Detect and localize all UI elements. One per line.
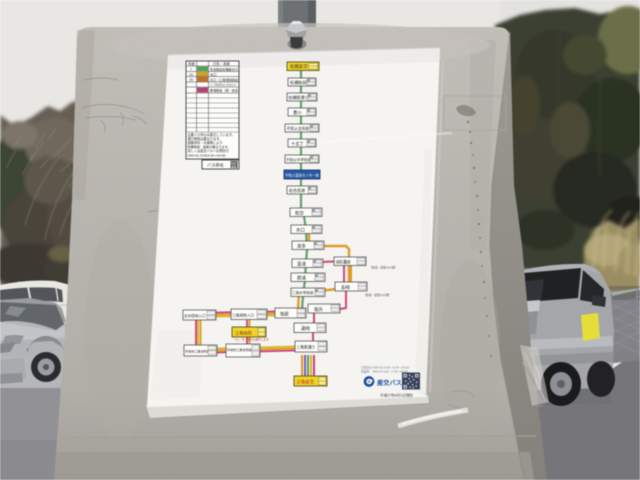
svg-text:波多: 波多 — [297, 243, 306, 250]
svg-text:郡浦: 郡浦 — [297, 275, 306, 282]
svg-text:三角中学校前: 三角中学校前 — [292, 290, 314, 295]
svg-text:15: 15 — [189, 78, 193, 82]
svg-text:北木団地入口: 北木団地入口 — [184, 313, 206, 318]
svg-text:宇城市三角支所前: 宇城市三角支所前 — [185, 349, 210, 354]
svg-text:三角駅通り: 三角駅通り — [297, 345, 316, 350]
svg-text:0964-52-3135(9:45～18:00): 0964-52-3135(9:45～18:00) — [188, 154, 226, 158]
svg-text:7: 7 — [190, 68, 192, 72]
svg-text:塩屋: 塩屋 — [280, 311, 289, 318]
svg-text:不知火支所前: 不知火支所前 — [287, 126, 310, 131]
svg-text:水口: 水口 — [296, 227, 305, 233]
svg-text:松橋駅前: 松橋駅前 — [290, 79, 307, 86]
svg-text:颪崎: 颪崎 — [301, 325, 310, 332]
svg-text:水口（三角病院経由）: 水口（三角病院経由） — [210, 77, 241, 82]
svg-text:（郡浦・健軍2015便）: （郡浦・健軍2015便） — [363, 293, 392, 297]
svg-text:（郡浦・健軍2015便）: （郡浦・健軍2015便） — [369, 266, 398, 270]
svg-text:松橋産交: 松橋産交 — [290, 63, 308, 70]
svg-text:里浦: 里浦 — [297, 261, 306, 268]
svg-text:不知火温泉センター前: 不知火温泉センター前 — [285, 173, 320, 178]
svg-text:松合: 松合 — [295, 210, 304, 217]
svg-text:運賃: 運賃 — [231, 165, 237, 169]
svg-text:※三角病院は火木金のみ: ※三角病院は火木金のみ — [210, 83, 237, 87]
svg-text:時刻: 時刻 — [231, 162, 237, 166]
svg-text:産交バス: 産交バス — [377, 379, 402, 387]
svg-text:塩浜: 塩浜 — [314, 306, 323, 313]
svg-text:行先・系統: 行先・系統 — [213, 61, 231, 66]
svg-text:松合経由松橋産交行: 松合経由松橋産交行 — [210, 67, 238, 72]
svg-text:消防署前: 消防署前 — [336, 260, 351, 265]
svg-text:郡浦経由（颪・波多）: 郡浦経由（颪・波多） — [210, 88, 241, 93]
svg-text:三角病院: 三角病院 — [235, 330, 253, 337]
svg-text:平成27年8月1日現在: 平成27年8月1日現在 — [380, 393, 414, 398]
svg-text:詳しくは産交バスへお問合せ: 詳しくは産交バスへお問合せ — [188, 148, 229, 153]
svg-text:不知火中学校前: 不知火中学校前 — [286, 157, 312, 162]
svg-text:三角産交: 三角産交 — [297, 379, 315, 386]
svg-text:宇城市三角支所前: 宇城市三角支所前 — [227, 347, 252, 352]
svg-text:系統: 系統 — [188, 61, 195, 66]
svg-text:十五丁: 十五丁 — [291, 140, 304, 147]
svg-text:三角病院入口: 三角病院入口 — [232, 313, 254, 318]
svg-text:松橋駅通り: 松橋駅通り — [289, 94, 309, 100]
svg-text:バス停名: バス停名 — [207, 162, 224, 169]
svg-text:長崎: 長崎 — [341, 284, 350, 291]
svg-text:※火・木・金のみ運行します: ※火・木・金のみ運行します — [234, 338, 269, 342]
svg-text:豊川: 豊川 — [293, 109, 301, 115]
svg-text:松合西港: 松合西港 — [289, 187, 305, 193]
